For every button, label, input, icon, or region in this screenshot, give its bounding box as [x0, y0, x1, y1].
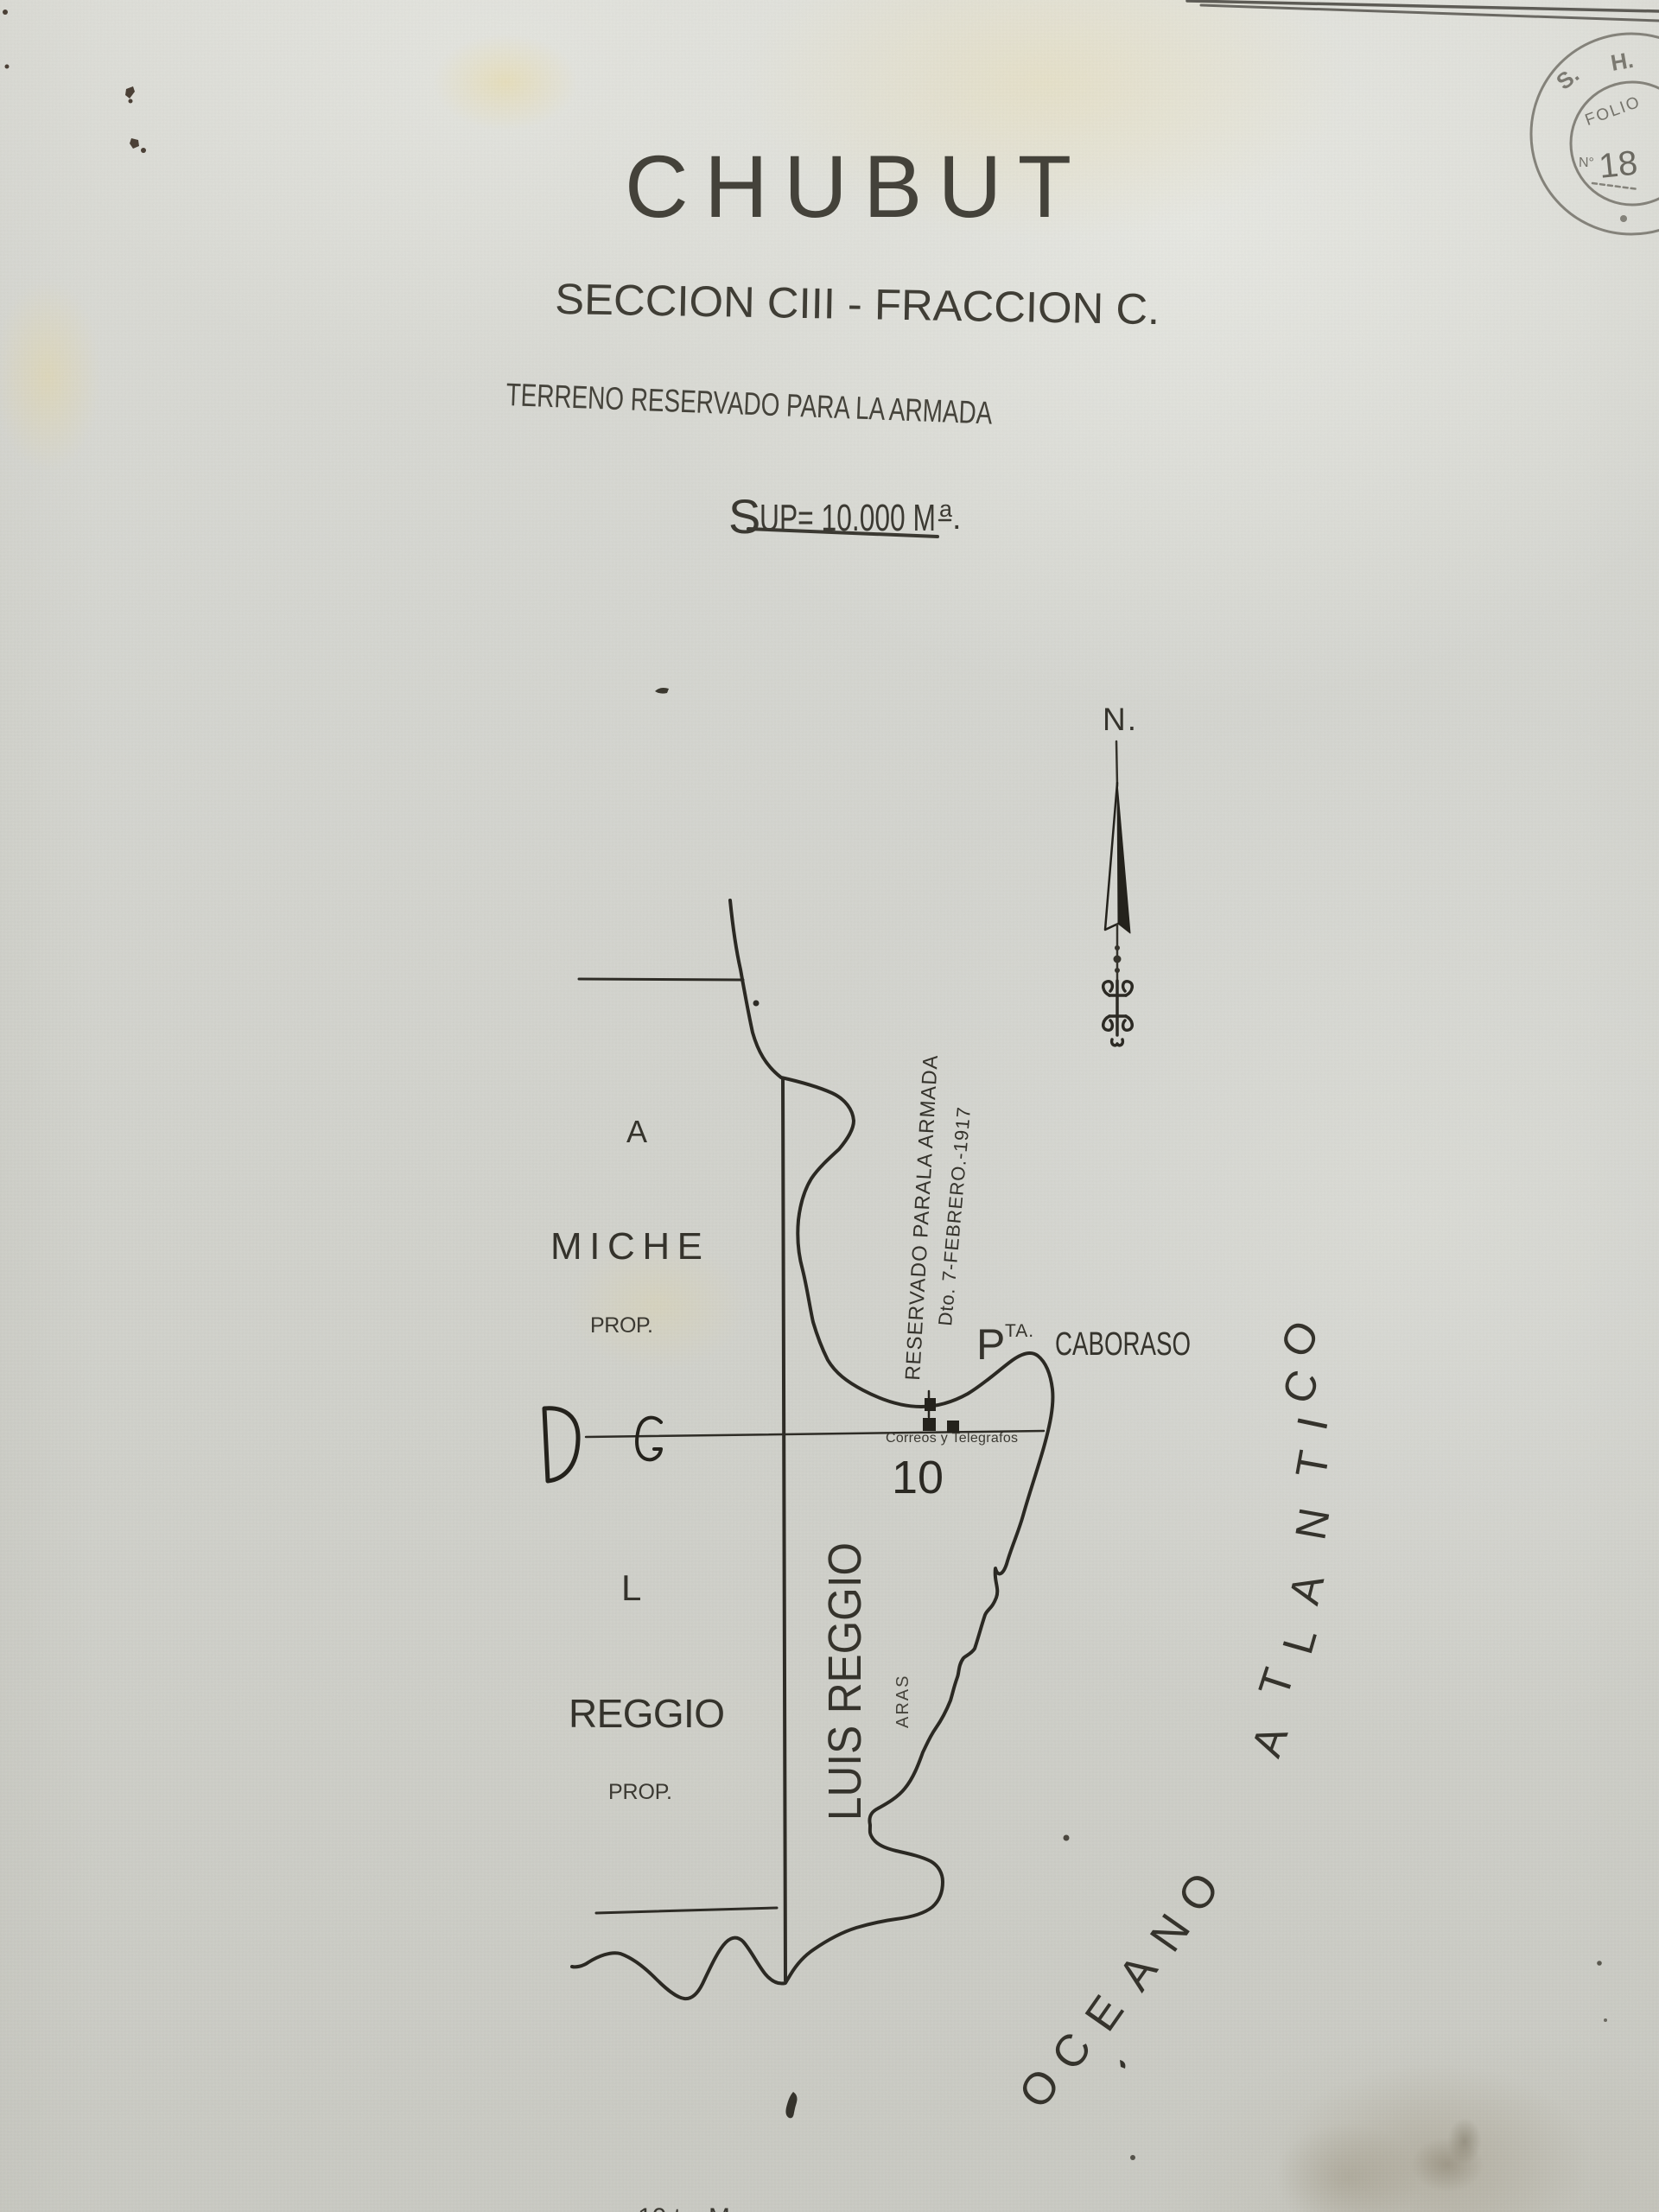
svg-text:N: N: [1141, 1905, 1200, 1961]
svg-text:Correos y Telegrafos: Correos y Telegrafos: [886, 1431, 1018, 1446]
svg-text:TA.: TA.: [1005, 1321, 1034, 1341]
svg-text:L: L: [621, 1567, 641, 1608]
svg-text:ARAS: ARAS: [893, 1675, 912, 1728]
svg-text:E: E: [1076, 1986, 1134, 2040]
svg-text:N°: N°: [1579, 156, 1594, 170]
svg-text:LUIS REGGIO: LUIS REGGIO: [819, 1542, 871, 1821]
svg-text:L: L: [1273, 1623, 1325, 1659]
svg-text:18: 18: [1597, 144, 1639, 186]
svg-text:.: .: [952, 500, 962, 537]
svg-text:O: O: [1270, 1313, 1329, 1365]
svg-text:a: a: [939, 496, 953, 522]
svg-text:H.: H.: [1609, 47, 1636, 76]
svg-text:O: O: [1168, 1864, 1230, 1921]
svg-text:CHUBUT: CHUBUT: [625, 137, 1071, 236]
svg-text:Dto. 7-FEBRERO.-1917: Dto. 7-FEBRERO.-1917: [934, 1105, 975, 1326]
svg-text:T: T: [1287, 1447, 1338, 1482]
svg-text:A: A: [1242, 1719, 1297, 1763]
svg-text:I: I: [1287, 1413, 1338, 1434]
svg-text:A: A: [626, 1114, 647, 1149]
svg-text:N.: N.: [1103, 702, 1138, 737]
svg-text:PROP.: PROP.: [608, 1780, 672, 1804]
svg-text:S: S: [728, 489, 760, 543]
svg-text:SECCION CIII - FRACCION C.: SECCION CIII - FRACCION C.: [555, 275, 1160, 334]
svg-text:T: T: [1249, 1662, 1304, 1702]
svg-text:RESERVADO PARALA ARMADA: RESERVADO PARALA ARMADA: [901, 1054, 943, 1382]
svg-text:PROP.: PROP.: [590, 1313, 653, 1338]
svg-text:CABORASO: CABORASO: [1055, 1326, 1191, 1363]
svg-text:O: O: [1009, 2060, 1071, 2117]
svg-text:C: C: [1273, 1363, 1329, 1409]
svg-text:N: N: [1286, 1504, 1338, 1543]
svg-text:TERRENO RESERVADO PARA LA ARMA: TERRENO RESERVADO PARA LA ARMADA: [505, 377, 993, 431]
svg-text:P: P: [976, 1320, 1005, 1369]
svg-text:A: A: [1280, 1569, 1334, 1610]
svg-text:MICHE: MICHE: [550, 1225, 702, 1268]
svg-text:REGGIO: REGGIO: [569, 1691, 725, 1736]
svg-text:M: M: [709, 2203, 730, 2212]
svg-text:10: 10: [892, 1452, 944, 1503]
svg-text:C: C: [1042, 2024, 1102, 2079]
svg-text:A: A: [1109, 1946, 1168, 1999]
svg-text:10 t: 10 t: [638, 2203, 682, 2212]
